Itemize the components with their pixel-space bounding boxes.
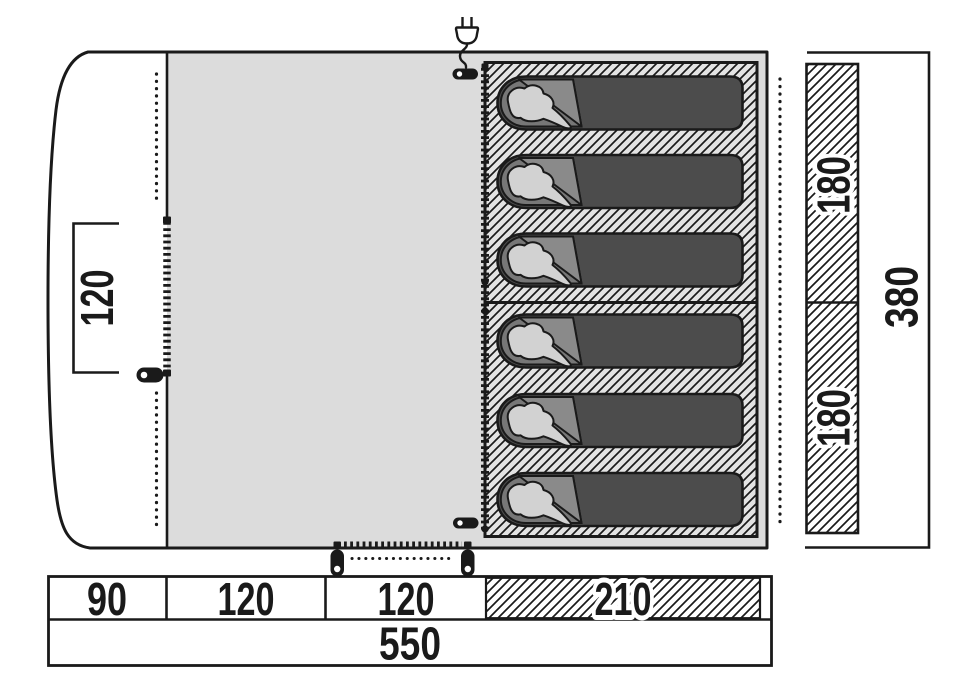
dim-width-total: 550 [379, 618, 441, 670]
zipper-pull-icon-right [461, 550, 475, 577]
inner-tent-hatch [485, 63, 757, 537]
sleeping-bag-6 [498, 473, 743, 526]
sleeping-bag-1 [498, 77, 743, 130]
sleeping-bag-4 [498, 315, 743, 368]
dim-width-seg-4: 210 [595, 573, 652, 625]
dim-porch-width: 120 [71, 270, 123, 327]
sleeping-bag-3 [498, 234, 743, 287]
side-zipper-stop-left [334, 542, 342, 550]
inner-zipper-dot-mid [481, 307, 488, 314]
dim-width-seg-2: 120 [218, 573, 275, 625]
sleeping-bag-5 [498, 394, 743, 447]
dim-cabin-depth-bottom: 180 [808, 389, 860, 447]
zipper-pull-icon-left [331, 550, 345, 577]
zipper-pull-icon [137, 368, 164, 383]
zipper-stop-bottom [163, 370, 171, 377]
cable-entry-icon-bottom [453, 518, 479, 529]
cabin-depth-dimension-bar: 180 180 [807, 64, 860, 533]
dim-depth-total: 380 [876, 266, 928, 328]
inner-tent [481, 63, 757, 537]
inner-zipper-dot-bottom [481, 525, 488, 532]
floorplan-stage: 180 180 380 120 90 120 120 210 550 [0, 0, 960, 700]
width-dimension-bar: 90 120 120 210 550 [49, 573, 772, 670]
inner-zipper-stop-top [482, 64, 489, 71]
inner-zipper-dot-upper [481, 278, 488, 285]
side-zipper-stop-right [464, 542, 472, 550]
sleeping-bag-2 [498, 155, 743, 208]
zipper-stop-top [163, 217, 171, 224]
cable-entry-icon-top [453, 69, 479, 80]
dim-cabin-depth-top: 180 [808, 156, 860, 214]
dim-width-seg-1: 90 [87, 573, 127, 625]
floorplan-canvas: 180 180 380 120 90 120 120 210 550 [0, 0, 960, 700]
